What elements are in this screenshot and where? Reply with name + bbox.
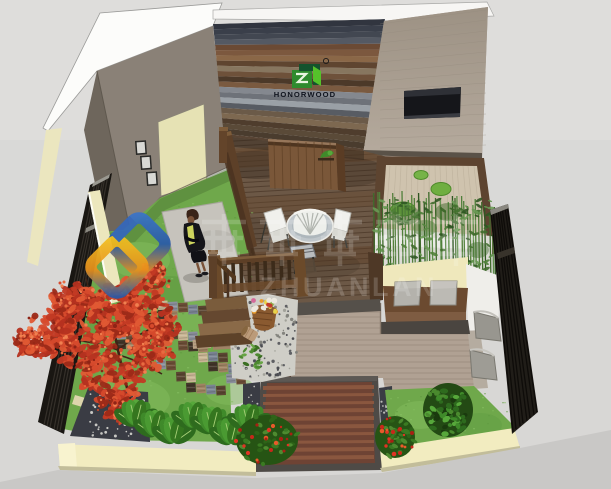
svg-text:HONORWOOD: HONORWOOD (274, 90, 337, 99)
svg-text:ZHUANLAN: ZHUANLAN (260, 272, 438, 302)
